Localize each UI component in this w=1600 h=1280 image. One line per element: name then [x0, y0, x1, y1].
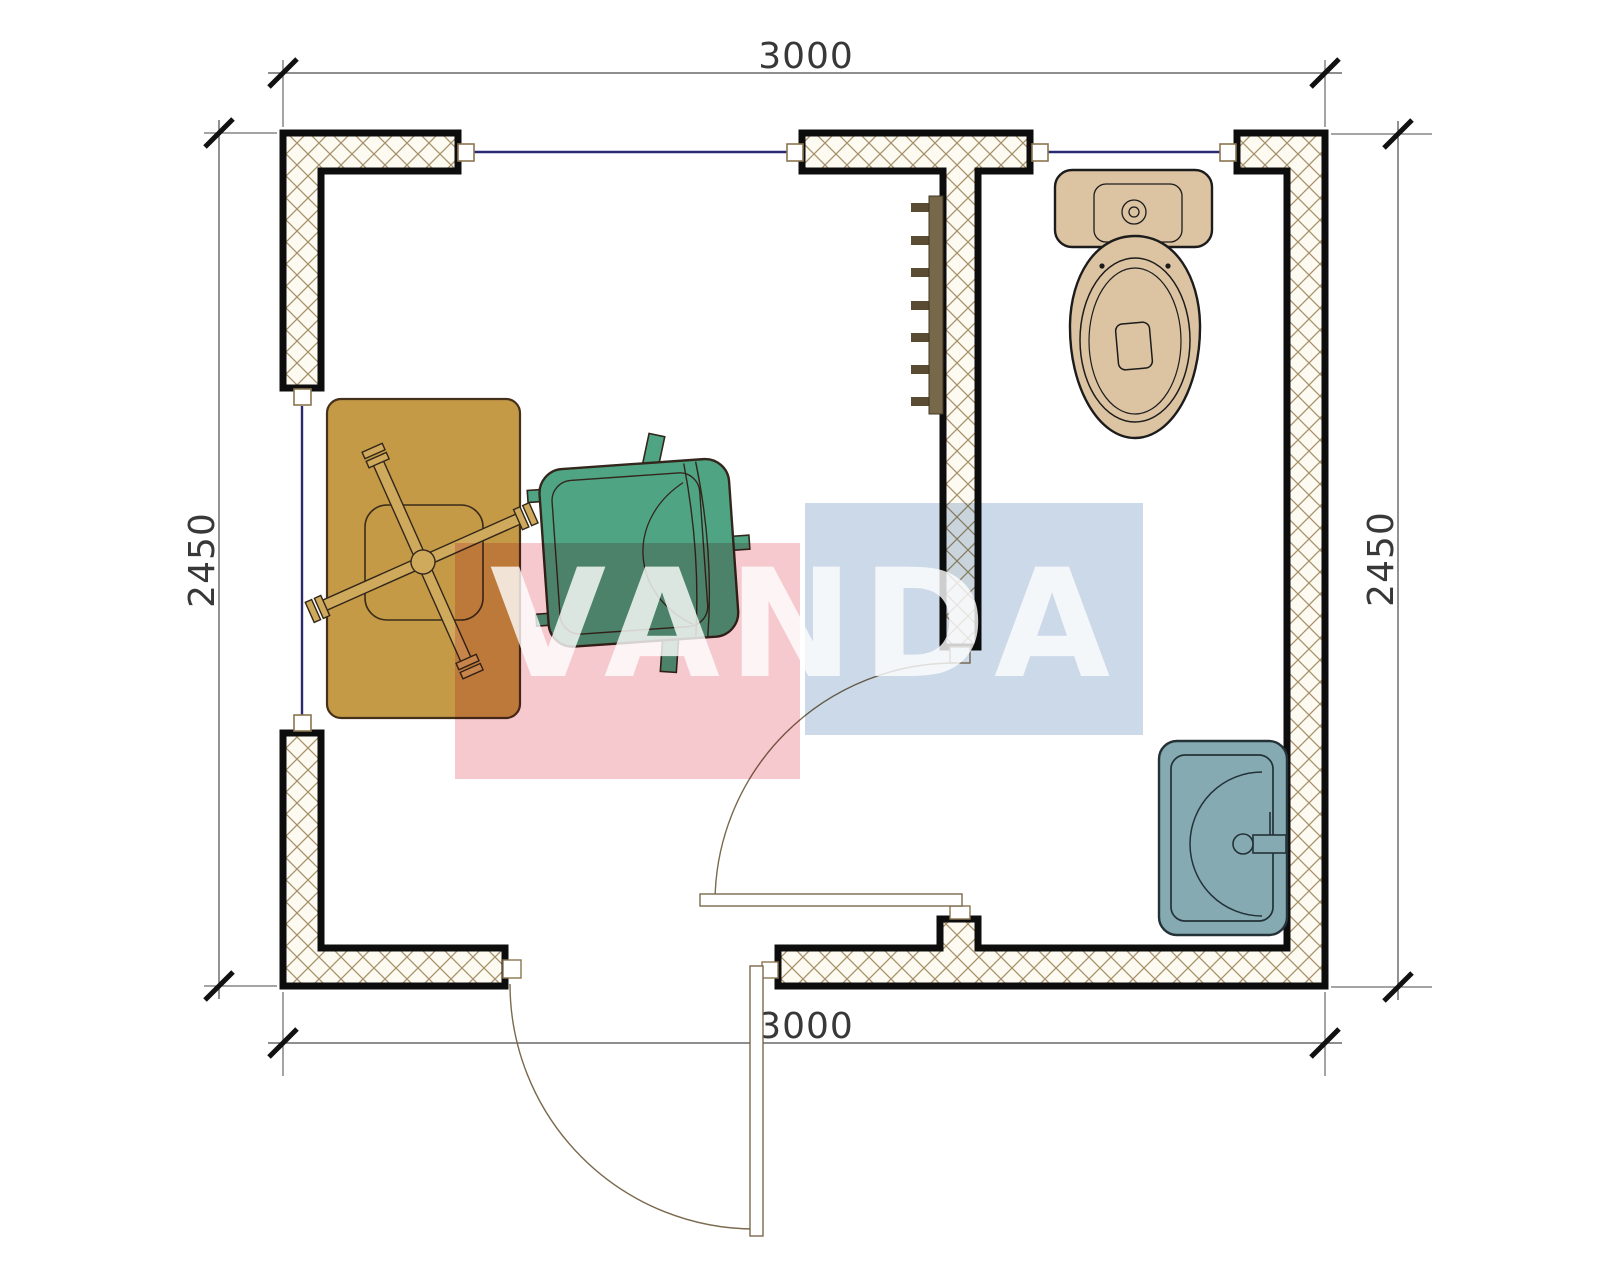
watermark-text: VANDA: [490, 538, 1118, 712]
radiator-fin: [911, 236, 929, 245]
dimension-right: 2450: [1331, 120, 1432, 1001]
radiator-fin: [911, 397, 929, 406]
dimension-top: 3000: [268, 36, 1342, 127]
toilet: [1055, 170, 1212, 438]
entry-door: [503, 960, 778, 1236]
dimension-left: 2450: [182, 119, 277, 1000]
window-frame-connector: [1220, 144, 1236, 161]
radiator-bar: [929, 196, 943, 414]
door-leaf: [750, 966, 763, 1236]
sink-faucet-knob: [1233, 834, 1253, 854]
door-frame-connector: [950, 906, 970, 919]
dim-label-top: 3000: [758, 36, 854, 77]
floor-plan-svg: 3000 3000 2450 2450: [0, 0, 1600, 1280]
sink: [1159, 741, 1287, 935]
radiator-fin: [911, 268, 929, 277]
dim-label-right: 2450: [1361, 511, 1402, 607]
window-frame-connector: [787, 144, 803, 161]
dimension-bottom: 3000: [268, 992, 1342, 1076]
dim-label-bottom: 3000: [758, 1006, 854, 1047]
wall-top-left: [283, 133, 458, 388]
window-frame-connector: [458, 144, 474, 161]
window-frame-connector: [294, 715, 311, 731]
radiator-fin: [911, 365, 929, 374]
toilet-seat-bolt: [1165, 263, 1170, 268]
door-leaf: [700, 894, 962, 906]
door-swing-arc: [510, 984, 755, 1229]
door-frame-connector: [503, 960, 521, 978]
sink-faucet: [1253, 835, 1286, 853]
window-frame-connector: [294, 389, 311, 405]
door-frame-connector: [762, 962, 778, 978]
dim-label-left: 2450: [182, 512, 223, 608]
radiator: [911, 196, 943, 414]
window-frame-connector: [1032, 144, 1048, 161]
radiator-fin: [911, 203, 929, 212]
radiator-fin: [911, 301, 929, 310]
toilet-seat-bolt: [1099, 263, 1104, 268]
radiator-fin: [911, 333, 929, 342]
floor-plan-page: 3000 3000 2450 2450: [0, 0, 1600, 1280]
